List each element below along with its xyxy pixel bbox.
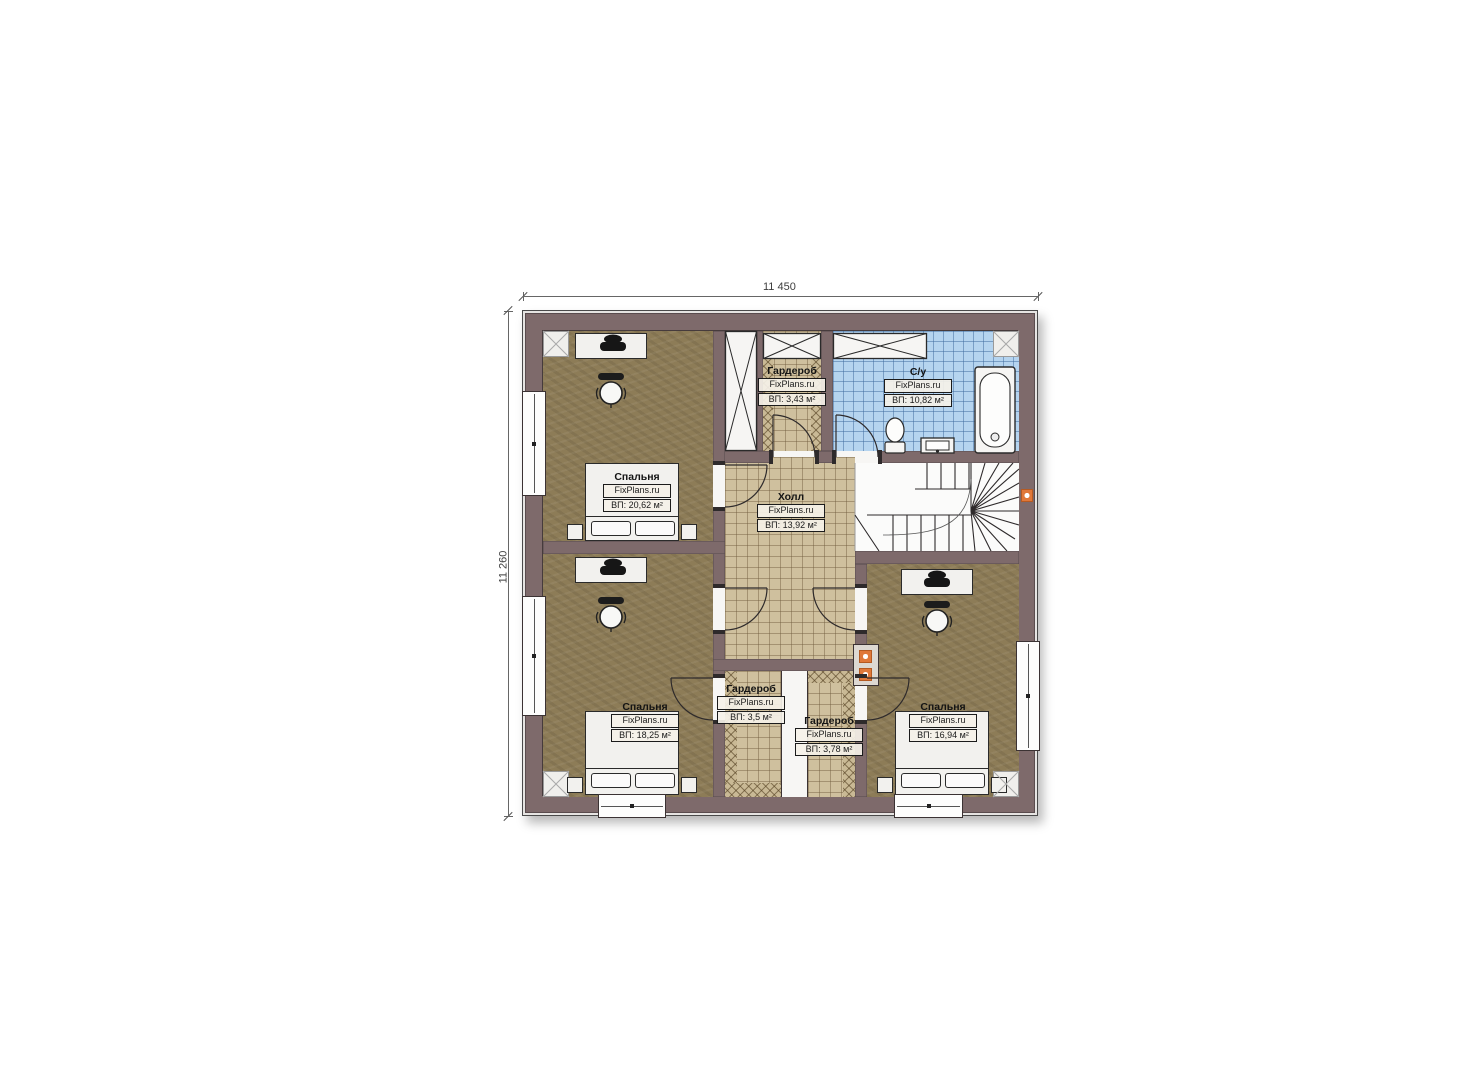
desk — [575, 333, 647, 359]
pillow — [945, 773, 985, 788]
wall-segment — [713, 331, 725, 465]
pillow — [635, 773, 675, 788]
corner-pilaster — [543, 331, 569, 357]
nightstand — [991, 777, 1007, 793]
wall-segment — [815, 451, 836, 463]
shelving — [808, 671, 855, 683]
desk — [901, 569, 973, 595]
window — [1016, 641, 1040, 751]
wall-marker — [1021, 489, 1033, 502]
room-bathroom — [833, 331, 1019, 451]
window — [894, 794, 963, 818]
nightstand — [567, 777, 583, 793]
dimension-height-label: 11 260 — [497, 551, 509, 584]
floor-plan: 11 450 11 260 — [522, 310, 1038, 816]
nightstand — [877, 777, 893, 793]
chimney-block — [853, 644, 879, 686]
wall-segment — [757, 331, 763, 451]
wall-segment — [855, 564, 867, 588]
shelving — [811, 359, 821, 451]
shelving — [725, 783, 781, 797]
pillow — [635, 521, 675, 536]
chimney-flue — [859, 668, 872, 681]
stair-zone — [855, 463, 1019, 551]
wall-segment — [855, 720, 867, 797]
room-hall — [725, 457, 855, 663]
window — [598, 794, 666, 818]
wall-segment — [543, 541, 725, 554]
nightstand — [567, 524, 583, 540]
wall-segment — [713, 659, 867, 671]
dimension-width-label: 11 450 — [763, 281, 796, 293]
wall-segment — [821, 331, 833, 451]
desk — [575, 557, 647, 583]
nightstand — [681, 777, 697, 793]
chimney-flue — [859, 650, 872, 663]
page: 11 450 11 260 — [0, 0, 1473, 1080]
window — [522, 596, 546, 716]
shelving — [843, 671, 855, 797]
wall-segment — [878, 451, 1019, 463]
corner-pilaster — [543, 771, 569, 797]
shelving — [763, 359, 773, 451]
window — [522, 391, 546, 496]
shaft-between-wardrobes — [781, 671, 808, 797]
pillow — [591, 521, 631, 536]
pillow — [591, 773, 631, 788]
nightstand — [681, 524, 697, 540]
pillow — [901, 773, 941, 788]
corner-pilaster — [993, 331, 1019, 357]
wall-segment — [713, 720, 725, 797]
dimension-line-top — [523, 296, 1039, 297]
shelving — [725, 671, 737, 797]
wall-segment — [855, 551, 1019, 564]
